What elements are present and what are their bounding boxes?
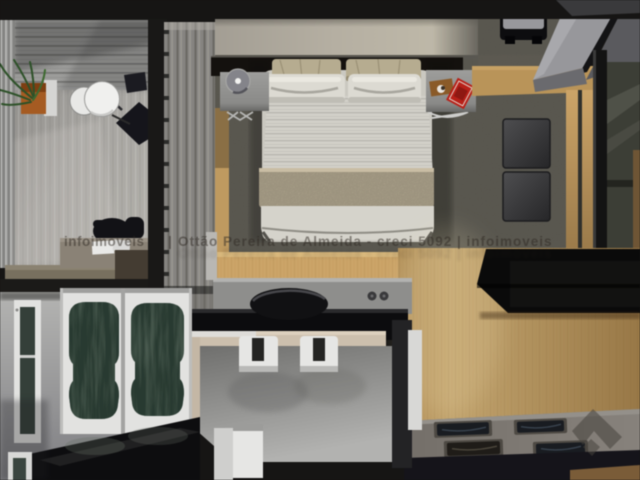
svg-text:Ottão Pereira de Almeida - cre: Ottão Pereira de Almeida - creci 5092 | …: [178, 246, 552, 261]
svg-text:|: |: [168, 234, 172, 249]
svg-text:infoimoveis: infoimoveis: [64, 234, 145, 249]
